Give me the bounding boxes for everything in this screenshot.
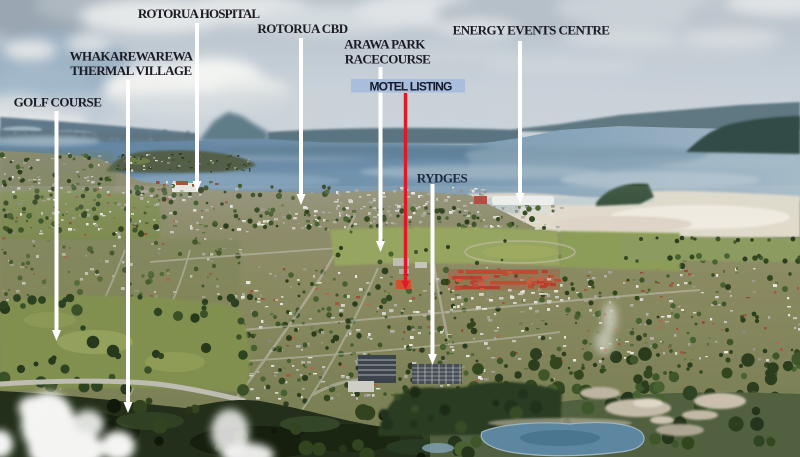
svg-text:RYDGES: RYDGES <box>417 170 468 185</box>
svg-text:ROTORUA CBD: ROTORUA CBD <box>257 21 347 36</box>
svg-text:RACECOURSE: RACECOURSE <box>345 52 431 67</box>
svg-text:THERMAL VILLAGE: THERMAL VILLAGE <box>70 63 191 78</box>
svg-text:ROTORUA HOSPITAL: ROTORUA HOSPITAL <box>138 6 261 21</box>
svg-text:ENERGY EVENTS CENTRE: ENERGY EVENTS CENTRE <box>453 23 610 38</box>
svg-text:ARAWA PARK: ARAWA PARK <box>344 37 426 52</box>
svg-text:WHAKAREWAREWA: WHAKAREWAREWA <box>70 49 194 64</box>
svg-text:GOLF COURSE: GOLF COURSE <box>14 94 102 109</box>
svg-text:MOTEL LISTING: MOTEL LISTING <box>369 80 452 94</box>
